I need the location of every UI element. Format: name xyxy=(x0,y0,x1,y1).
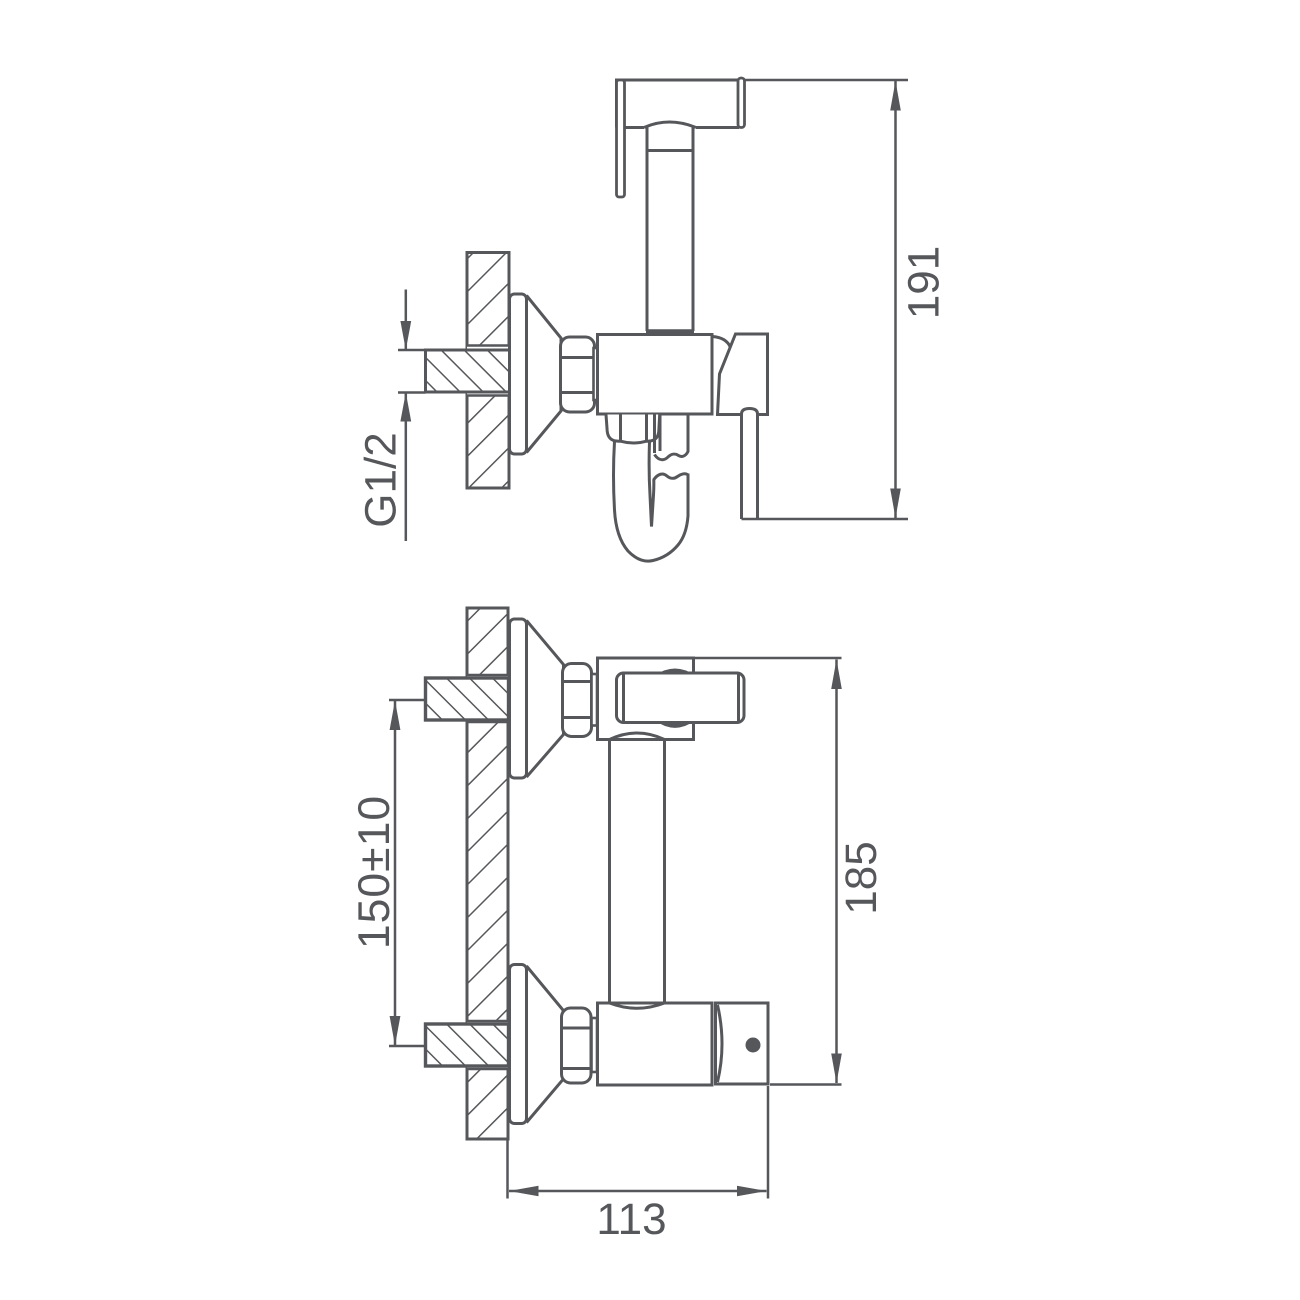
svg-text:G1/2: G1/2 xyxy=(357,432,406,527)
svg-text:150±10: 150±10 xyxy=(350,795,399,949)
svg-text:113: 113 xyxy=(596,1195,666,1244)
svg-text:185: 185 xyxy=(837,841,886,914)
svg-text:191: 191 xyxy=(900,246,949,319)
